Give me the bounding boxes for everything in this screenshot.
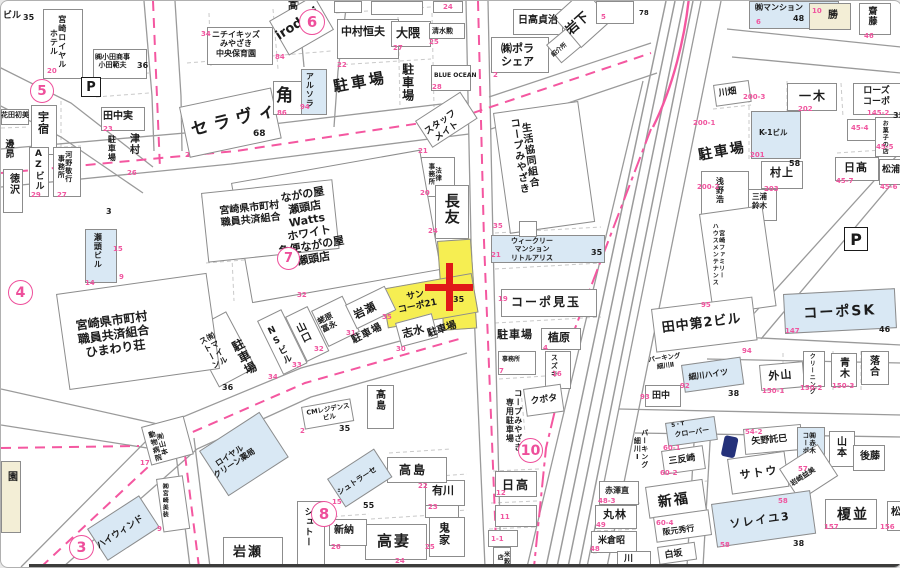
block-number-badge: 6 <box>299 9 325 35</box>
map-label: 落合 <box>867 355 878 377</box>
parking-icon: P <box>844 227 868 251</box>
lot-number: 94 <box>300 103 310 111</box>
lot-number: 156 <box>880 523 895 531</box>
map-label: K-1ビル <box>759 129 788 138</box>
lot-number: 14 <box>85 279 95 287</box>
map-label: スタッフ メイト <box>423 108 465 146</box>
map-label: 新納 <box>334 525 354 537</box>
lot-number: 45-4 <box>851 124 869 132</box>
map-label: 35 <box>23 13 34 22</box>
map-label: 駐車場 <box>107 135 115 162</box>
lot-number: 25 <box>425 543 435 551</box>
map-label: 川畑 <box>718 86 737 99</box>
map-label: 駐車場 <box>229 337 258 377</box>
map-label: 園 <box>5 471 16 482</box>
map-label: ニチイキッズ みやざき 中央保育園 <box>212 30 260 58</box>
lot-number: 58 <box>778 497 788 505</box>
map-label: 68 <box>253 129 266 140</box>
lot-number: 49 <box>596 521 606 529</box>
map-label: 岩下 <box>563 10 593 39</box>
map-label: 紹介所 <box>550 41 568 58</box>
lot-number: 150-2 <box>800 384 822 392</box>
marker-cross-vertical <box>446 263 453 311</box>
lot-number: 32 <box>314 345 324 353</box>
map-label: ハイウィンド <box>95 514 146 552</box>
map-label: 三浦 鈴木 <box>752 193 767 211</box>
map-label: 駐車場 <box>497 329 533 342</box>
map-label: 事務所 <box>502 356 520 363</box>
map-label: ㈱小田商事 小田範夫 <box>95 53 130 70</box>
map-label: 外山 <box>768 369 793 384</box>
map-label: 55 <box>363 501 374 510</box>
map-label: 駐車場 <box>401 63 414 102</box>
lot-number: 2 <box>493 71 498 79</box>
lot-number: 23 <box>103 125 113 133</box>
map-label: 松 <box>891 507 900 519</box>
map-label: 松浦 <box>882 165 900 176</box>
lot-number: 94 <box>742 347 752 355</box>
lot-number: 60-2 <box>660 469 678 477</box>
map-label: 駐車場 <box>332 70 388 97</box>
block-number-badge: 3 <box>69 535 94 560</box>
map-label: 大隈 <box>396 26 420 40</box>
map-label: 三反崎 <box>668 453 696 467</box>
lot-number: 157 <box>824 523 839 531</box>
map-label: 後藤 <box>860 451 880 463</box>
map-label: 36 <box>137 61 148 70</box>
map-label: 志水 <box>401 323 426 341</box>
map-label: 岩瀬 <box>233 545 263 560</box>
lot-number: 150-3 <box>832 382 854 390</box>
map-label: 46 <box>879 325 890 334</box>
map-label: 宮崎ファミリー ハウスメンテナンス <box>711 223 724 286</box>
lot-number: 45-5 <box>876 143 894 151</box>
lot-number: 200-1 <box>693 119 715 127</box>
lot-number: 35 <box>382 313 392 321</box>
map-label: 角 <box>276 86 293 106</box>
map-label: 山本 <box>834 436 845 458</box>
map-label: 有川 <box>432 485 454 498</box>
map-label: 髙島 <box>373 389 384 411</box>
lot-number: 23 <box>428 503 438 511</box>
map-label: 田中 <box>652 391 670 402</box>
map-label: パーキング 細川Ⅰ <box>633 429 648 469</box>
map-label: 宮崎ロイヤル ホテル <box>49 15 66 69</box>
lot-number: 10 <box>812 7 822 15</box>
map-label: 35 <box>453 295 464 304</box>
lot-number: 201 <box>750 151 765 159</box>
map-label: 青木 <box>837 357 848 379</box>
lot-number: 12 <box>496 489 506 497</box>
map-label: 48 <box>793 14 804 23</box>
lot-number: 150-1 <box>762 387 784 395</box>
map-label: 日高 <box>502 478 530 492</box>
map-label: 高妻 <box>377 533 411 551</box>
map-label: 赤澤直 <box>605 486 629 495</box>
map-label: 35 <box>893 111 900 120</box>
map-label: 岩瀬 <box>352 300 379 322</box>
block-number-badge: 4 <box>8 280 33 305</box>
block-number-badge: 8 <box>311 501 337 527</box>
lot-number: 9 <box>157 525 162 533</box>
map-label: BLUE OCEAN <box>434 72 477 79</box>
map-label: ローズ コーポ <box>863 86 890 107</box>
map-label: 35 <box>591 248 602 257</box>
map-label: 38 <box>793 539 804 548</box>
map-label: 蛯原 冨永 <box>316 311 339 335</box>
lot-number: 24 <box>428 227 438 235</box>
map-label: 宮崎県市町村 職員共済組合 <box>219 200 281 230</box>
lot-number: 45-6 <box>880 183 898 191</box>
map-label: ウィークリー マンション リトルアリス <box>511 237 553 262</box>
map-label: 植原 <box>548 332 570 345</box>
map-label: 一木 <box>799 89 827 103</box>
lot-number: 32 <box>297 291 307 299</box>
lot-number: 26 <box>127 169 137 177</box>
map-label: 宇宿 <box>37 111 49 135</box>
lot-number: 48 <box>590 545 600 553</box>
lot-number: 33 <box>292 361 302 369</box>
lot-number: 28 <box>432 83 442 91</box>
lot-number: 26 <box>331 543 341 551</box>
map-label: 花田初美 <box>1 111 29 119</box>
lot-number: 20 <box>420 189 430 197</box>
map-label: CMレジデンス ビル <box>306 402 352 425</box>
lot-number: 20 <box>47 67 57 75</box>
lot-number: 2 <box>185 151 190 159</box>
map-label: ㈲山本 動物病院 <box>147 428 169 463</box>
map-label: コーポSK <box>803 302 877 322</box>
map-label: セラヴィ <box>189 99 283 141</box>
map-label: 78 <box>639 9 649 17</box>
map-label: 瀬頭ビル <box>93 233 101 269</box>
parking-icon: P <box>81 77 101 97</box>
lot-number: 27 <box>393 44 403 52</box>
lot-number: 86 <box>277 109 287 117</box>
lot-number: 22 <box>337 61 347 69</box>
map-label: 駐車場 <box>426 320 458 340</box>
map-label: 3 <box>106 207 112 216</box>
map-label: サトウ <box>739 465 779 483</box>
map-label: 38 <box>728 389 739 398</box>
map-label: 勝 <box>828 10 838 22</box>
map-label: ビル <box>3 11 21 22</box>
map-label: 齋藤 <box>866 6 875 26</box>
block-number-badge: 10 <box>518 438 543 463</box>
block-number-badge: 7 <box>277 247 300 270</box>
map-label: 36 <box>222 383 233 392</box>
lot-number: 21 <box>491 251 501 259</box>
map-label: ソレイユ3 <box>729 510 792 531</box>
lot-number: 24 <box>443 3 453 11</box>
map-label: 田中実 <box>103 111 133 123</box>
map-label: S・T <box>671 421 685 429</box>
lot-number: 25 <box>429 38 439 46</box>
map-label: 山口 <box>292 321 311 345</box>
lot-number: 1-1 <box>491 535 504 543</box>
map-label: コーポ見玉 <box>511 295 581 309</box>
map-label: 徳沢 <box>7 173 18 195</box>
map-label: 中村恒夫 <box>341 26 385 39</box>
map-label: NSビル <box>265 325 292 367</box>
lot-number: 147 <box>785 327 800 335</box>
lot-number: 6 <box>756 18 761 26</box>
map-label: 高島 <box>399 463 427 477</box>
map-label: ロイヤル クリーン薬局 <box>207 439 257 481</box>
map-label: シュトラーセ <box>336 465 379 497</box>
map-label: 日高貞治 <box>518 15 558 27</box>
lot-number: 22 <box>418 482 428 490</box>
lot-number: 2 <box>300 427 305 435</box>
map-label: 津村 <box>127 133 138 155</box>
lot-number: 34 <box>268 373 278 381</box>
lot-number: 200-2 <box>697 183 719 191</box>
lot-number: 145-2 <box>867 109 889 117</box>
map-label: ㈱マンション <box>755 3 803 12</box>
lot-number: 34 <box>201 30 211 38</box>
lot-number: 45-7 <box>836 177 854 185</box>
lot-number: 92 <box>680 382 690 390</box>
map-label: 丸林 <box>603 509 627 522</box>
lot-number: 21 <box>418 147 428 155</box>
lot-number: 95 <box>701 301 711 309</box>
map-label: 村上 <box>770 167 794 180</box>
lot-number: 17 <box>140 459 150 467</box>
map-label: 髙 <box>288 1 298 13</box>
map-label: ㈱ポラ シェア <box>501 43 534 69</box>
lot-number: 200-3 <box>743 93 765 101</box>
map-label: ㈱赤木 コーポ <box>801 432 815 455</box>
map-label: 榎並 <box>837 507 869 524</box>
map-label: 新福 <box>657 491 691 512</box>
lot-number: 60-1 <box>663 444 681 452</box>
map-label: 清水勲 <box>432 27 453 35</box>
lot-number: 93 <box>640 393 650 401</box>
lot-number: 30 <box>396 345 406 353</box>
map-label: 法律 事務所 <box>427 163 441 186</box>
map-label: 35 <box>339 424 350 433</box>
lot-number: 27 <box>57 191 67 199</box>
lot-number: 11 <box>500 513 510 521</box>
map-label: パーキング 細川Ⅱ <box>648 353 682 373</box>
map-label: 長友 <box>443 193 459 225</box>
lot-number: 29 <box>31 191 41 199</box>
map-label: 田中第2ビル <box>661 311 742 336</box>
map-label: クボタ <box>530 393 558 407</box>
lot-number: 16 <box>552 370 562 378</box>
map-label: 駐車場 <box>350 322 385 347</box>
lot-number: 7 <box>499 367 504 375</box>
map-label: AZビル <box>33 149 42 191</box>
map-label: 駐車場 <box>697 140 747 165</box>
lot-number: 5 <box>601 13 606 21</box>
block-number-badge: 5 <box>30 79 54 103</box>
map-label: 邊昴 <box>3 139 12 159</box>
lot-number: 35 <box>493 222 503 230</box>
lot-number: 46 <box>864 32 874 40</box>
map-label: 河野敬行 事務所 <box>57 151 72 183</box>
lot-number: 84 <box>275 53 285 61</box>
map-label: 生活協同組合 コープみやざき <box>507 116 539 195</box>
lot-number: 19 <box>498 295 508 303</box>
map-canvas[interactable]: ビル35宮崎ロイヤル ホテル20㈱小田商事 小田範夫36宇宿田中実23津村26駐… <box>0 0 900 568</box>
map-label: 白坂 <box>664 548 683 561</box>
map-label: ㈱宮崎美装 <box>161 483 167 518</box>
lot-number: 4 <box>543 344 548 352</box>
lot-number: 54-2 <box>745 428 763 436</box>
map-label: 宮崎県市町村 職員共済組合 ひまわり荘 <box>75 309 152 361</box>
map-label: 鬼家 <box>438 522 450 546</box>
lot-number: 48-3 <box>598 497 616 505</box>
lot-number: 58 <box>720 541 730 549</box>
lot-number: 15 <box>113 245 123 253</box>
map-label: 米倉昭 <box>598 536 625 547</box>
lot-number: 9 <box>119 273 124 281</box>
map-label: ㈲マイル ストーン <box>197 331 229 371</box>
map-label: サン コーポ21 <box>395 287 438 316</box>
map-label: 日髙 <box>844 162 868 175</box>
lot-number: 202 <box>798 105 813 113</box>
map-label: 細川ハイツ <box>688 367 729 382</box>
